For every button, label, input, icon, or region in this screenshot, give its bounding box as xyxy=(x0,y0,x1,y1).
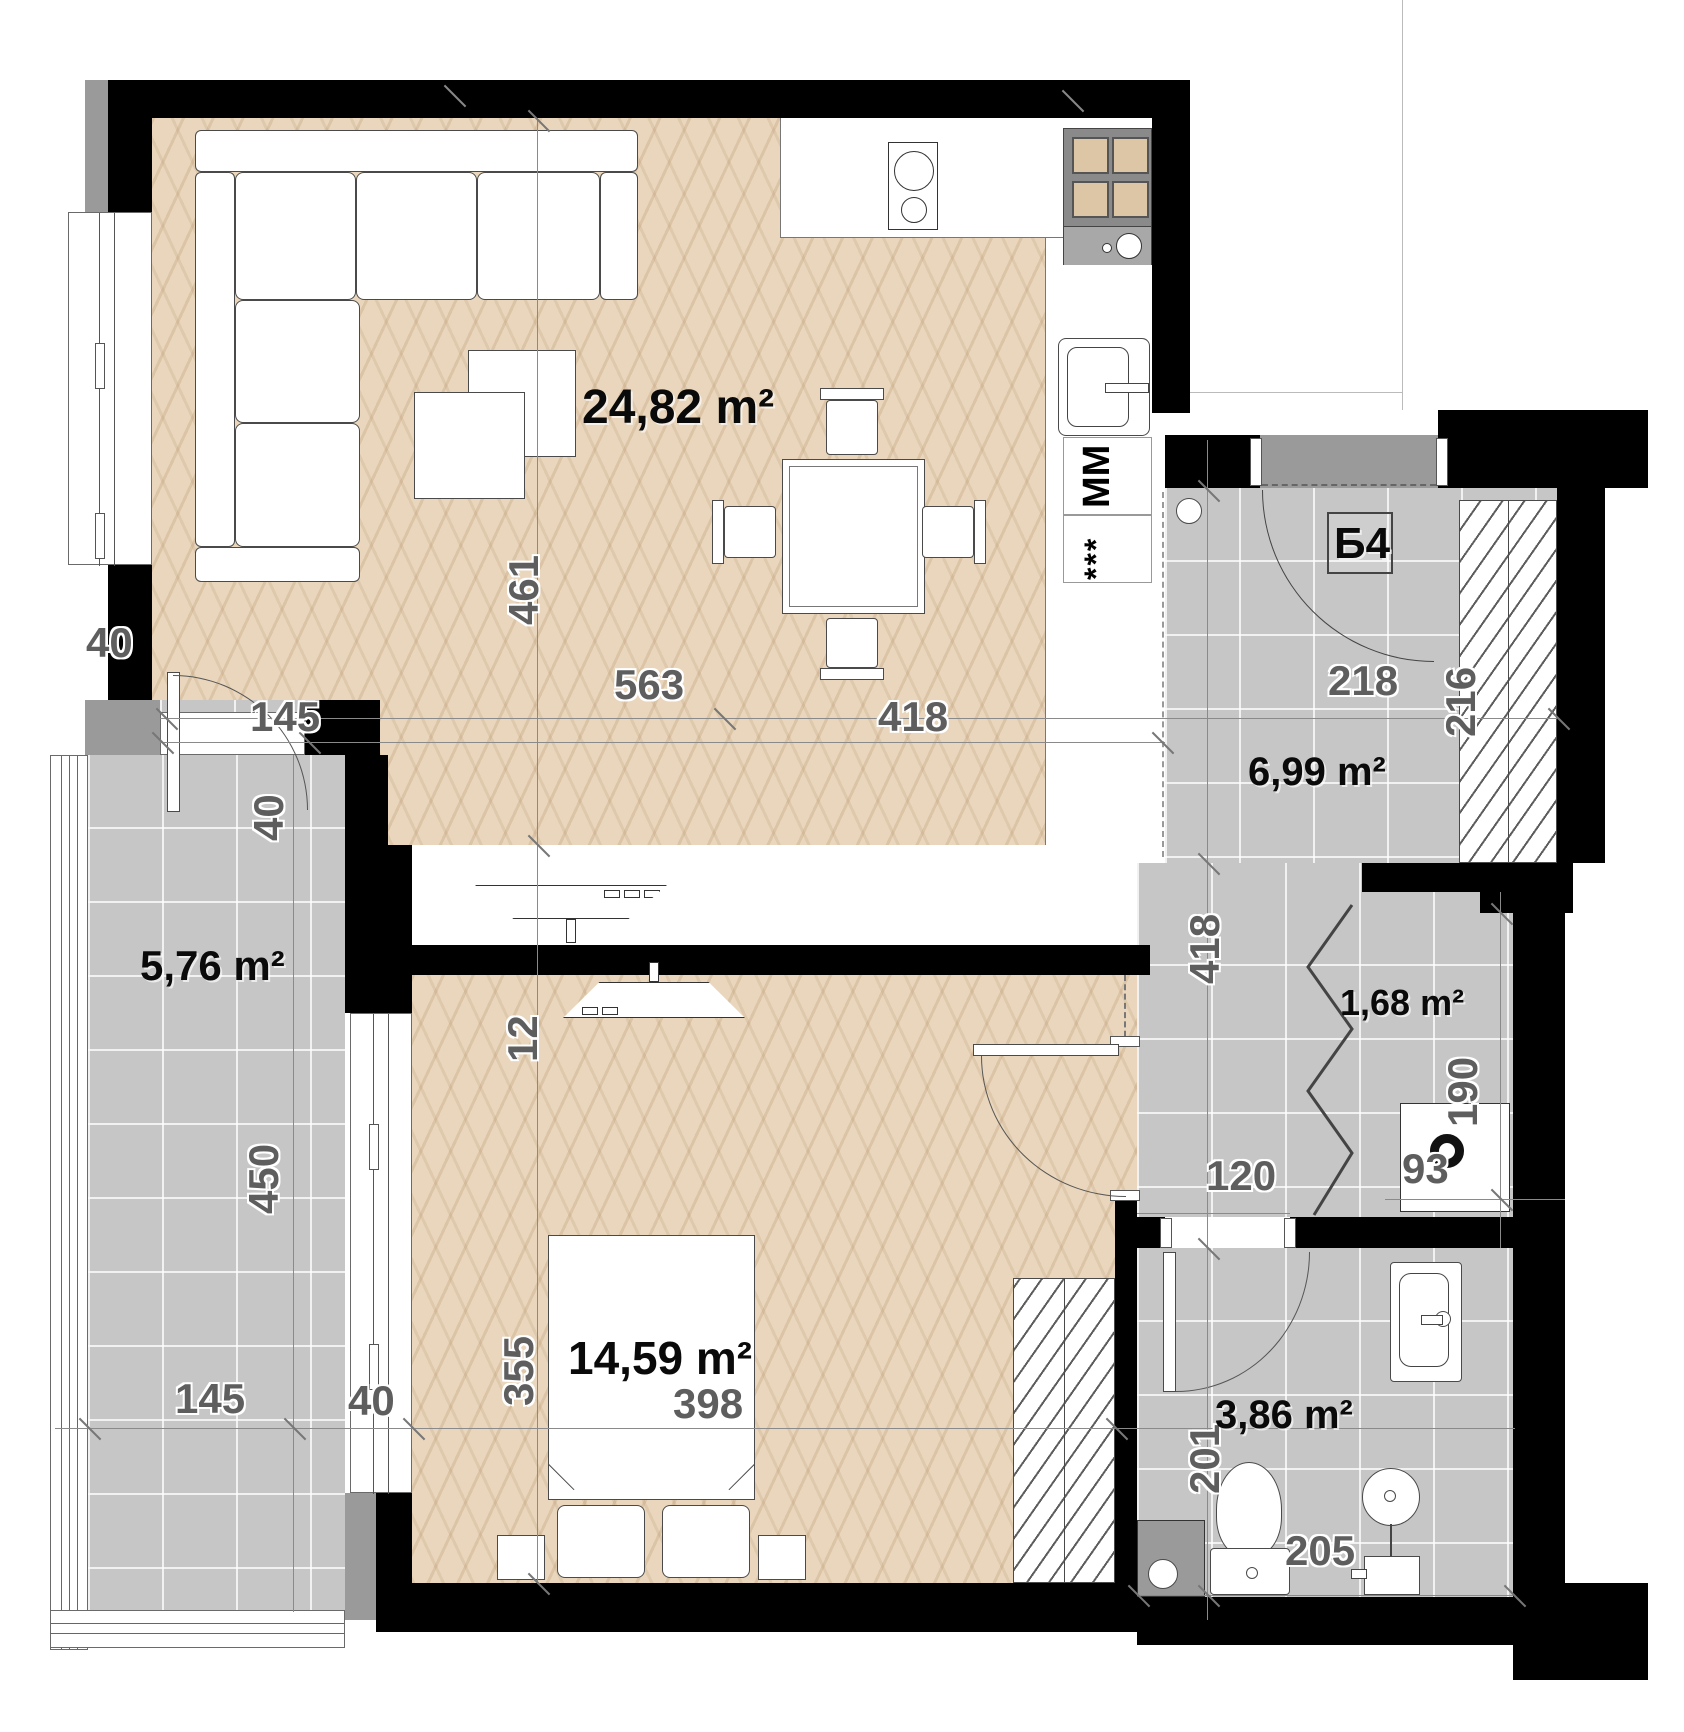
closet-folding-door xyxy=(1290,895,1370,1225)
closet-area-label: 1,68 m² xyxy=(1340,985,1464,1021)
bedroom-door-leaf xyxy=(973,1044,1119,1056)
dim-hall-w: 218 xyxy=(1328,660,1398,702)
trim-balcony-left xyxy=(85,700,160,755)
wall-bath-right xyxy=(1513,1248,1565,1597)
bathroom-door-jamb xyxy=(1160,1218,1172,1248)
dim-living-door: 145 xyxy=(250,696,320,738)
balcony-rail-left xyxy=(50,755,88,1650)
wall-left-upper xyxy=(108,80,152,212)
entry-threshold xyxy=(1260,435,1438,488)
washbasin-icon xyxy=(1390,1262,1462,1382)
dim-hall-depth: 418 xyxy=(1184,862,1226,984)
wall-hall-top-right xyxy=(1438,410,1648,488)
dim-wall-t: 12 xyxy=(502,1000,544,1062)
sofa-cushion xyxy=(356,172,477,300)
wall-bath-bottom xyxy=(1137,1597,1565,1645)
dining-chair xyxy=(712,500,724,564)
dim-door-reveal: 40 xyxy=(248,785,290,841)
sofa-cushion xyxy=(235,300,360,423)
dim-balcony-side: 40 xyxy=(348,1380,395,1422)
dim-line xyxy=(293,755,294,1612)
floor-plan: ММ *** Б4 xyxy=(0,0,1684,1732)
dining-chair xyxy=(820,388,884,400)
dim-line xyxy=(1137,1595,1513,1596)
wall-hall-top-left xyxy=(1165,435,1260,488)
exterior-line-vertical xyxy=(1402,0,1403,410)
wall-top xyxy=(95,80,1190,118)
bathroom-area-label: 3,86 m² xyxy=(1215,1395,1353,1435)
dim-balcony-d: 450 xyxy=(243,1122,285,1214)
tv-bedroom-stand xyxy=(649,962,659,982)
trim-top-left xyxy=(85,80,108,212)
window-handle-icon xyxy=(95,513,105,559)
shower-mixer-icon xyxy=(1364,1556,1420,1595)
dishwasher-label: *** xyxy=(1080,528,1112,580)
balcony-area-label: 5,76 m² xyxy=(140,945,285,987)
entry-jamb xyxy=(1250,438,1262,486)
toilet-tank-icon xyxy=(1210,1548,1290,1595)
bed-pillow xyxy=(662,1505,750,1578)
pipe-shaft xyxy=(1137,1520,1205,1597)
shower-stem xyxy=(1390,1524,1392,1558)
dim-balcony-w: 145 xyxy=(175,1378,245,1420)
dim-closet-d: 190 xyxy=(1442,1035,1484,1127)
counter-edge xyxy=(1045,237,1046,845)
sofa-back-top xyxy=(195,130,638,172)
dim-window-side: 40 xyxy=(86,622,133,664)
counter-edge xyxy=(780,118,781,237)
wall-bedroom-bottom xyxy=(376,1583,1137,1632)
window-handle-icon xyxy=(369,1124,379,1170)
sofa-cushion xyxy=(477,172,600,300)
dim-hall-wardrobe-d: 216 xyxy=(1440,615,1482,737)
dim-line xyxy=(1500,892,1501,1248)
faucet-icon xyxy=(1105,383,1149,393)
stove-icon xyxy=(1063,128,1152,265)
entry-opening-dash xyxy=(1262,484,1436,486)
washing-machine-label: ММ xyxy=(1078,448,1116,508)
living-window xyxy=(68,212,152,565)
dim-living-w1: 563 xyxy=(614,664,684,706)
window-handle-icon xyxy=(95,343,105,389)
dim-line xyxy=(1137,1213,1290,1214)
dining-table xyxy=(782,459,925,614)
wall-closet-right xyxy=(1513,913,1565,1248)
wall-wardrobe-bottom xyxy=(1362,863,1573,892)
bedroom-wardrobe xyxy=(1013,1278,1115,1583)
dining-chair xyxy=(826,618,878,668)
dining-chair xyxy=(820,668,884,680)
tv-living-stand xyxy=(566,919,576,943)
wall-kitchen-right xyxy=(1152,80,1190,413)
dining-chair xyxy=(826,400,878,455)
entry-jamb xyxy=(1436,438,1448,486)
wall-closet-jog xyxy=(1480,890,1573,913)
sofa-cushion xyxy=(235,172,356,300)
dim-bedroom-d: 355 xyxy=(498,1288,540,1406)
balcony-rail-bottom xyxy=(50,1610,345,1648)
dim-bedroom-w: 398 xyxy=(673,1383,743,1425)
wall-hall-right xyxy=(1557,488,1605,863)
dining-chair xyxy=(922,506,974,558)
wall-bedroom-right xyxy=(1115,1190,1137,1583)
dining-chair xyxy=(724,506,776,558)
dim-living-depth: 461 xyxy=(503,505,545,625)
hall-area-label: 6,99 m² xyxy=(1248,752,1386,792)
dim-bath-w: 205 xyxy=(1285,1530,1355,1572)
wall-corner-block-se xyxy=(1513,1583,1648,1680)
sofa-armrest xyxy=(195,547,360,582)
sofa-back-left xyxy=(195,172,235,547)
sofa-cushion xyxy=(235,423,360,547)
unit-label: Б4 xyxy=(1334,522,1390,566)
oven-icon xyxy=(1064,226,1151,265)
wall-bedroom-top xyxy=(376,945,1150,975)
kitchen-sink-icon xyxy=(1058,338,1150,436)
dim-closet-w: 93 xyxy=(1402,1148,1449,1190)
bathroom-door-leaf xyxy=(1163,1252,1176,1392)
dim-living-w2: 418 xyxy=(878,696,948,738)
living-area-label: 24,82 m² xyxy=(582,384,774,432)
dim-line xyxy=(160,718,1557,719)
dim-corridor-w: 120 xyxy=(1206,1155,1276,1197)
dining-chair xyxy=(974,500,986,564)
bed-pillow xyxy=(557,1505,645,1578)
exterior-line-horizontal xyxy=(1190,392,1402,393)
coffee-table xyxy=(414,392,525,499)
dim-line xyxy=(1385,1199,1565,1200)
cooktop-icon xyxy=(888,142,938,230)
hall-floor-south xyxy=(1137,863,1362,892)
sofa-armrest xyxy=(600,172,638,300)
bedroom-area-label: 14,59 m² xyxy=(568,1335,752,1381)
entry-point-icon xyxy=(1176,498,1202,524)
balcony-floor xyxy=(88,755,345,1612)
nightstand xyxy=(758,1535,806,1580)
kitchen-hall-boundary-dash xyxy=(1162,492,1164,857)
shower-head-icon xyxy=(1362,1468,1420,1526)
